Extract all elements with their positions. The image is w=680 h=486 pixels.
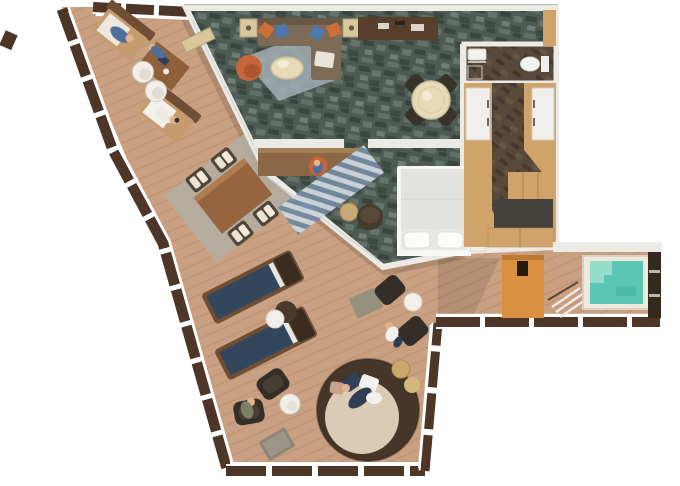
- terrace-end-wall: [648, 252, 661, 318]
- privacy-screen-slot: [517, 261, 528, 276]
- deck-stool-shade: [139, 68, 151, 80]
- terrace-wall: [553, 242, 662, 252]
- closet-door: [532, 88, 554, 140]
- closet-handle: [533, 100, 535, 108]
- end-wall-notch: [649, 294, 660, 297]
- media-console: [358, 17, 438, 40]
- lamp-shade: [246, 25, 251, 30]
- pillow-shape: [437, 232, 464, 249]
- console-top: [358, 17, 438, 40]
- toilet: [521, 57, 540, 71]
- wardrobe: [488, 228, 554, 247]
- dining-area: [403, 72, 458, 127]
- stool: [340, 203, 358, 221]
- railing-fragment: [0, 30, 18, 50]
- armchair-seat: [244, 64, 260, 78]
- daybed-bolster: [404, 377, 420, 393]
- sofa-throw: [314, 51, 335, 68]
- round-daybed: [317, 359, 420, 461]
- daybed-bolster: [392, 360, 410, 378]
- bed-footboard: [397, 250, 471, 256]
- suite-floor-plan: [0, 0, 680, 486]
- person-head: [342, 384, 350, 392]
- sofa-back: [258, 18, 342, 25]
- tv-screen: [395, 21, 405, 25]
- double-bed: [397, 166, 471, 256]
- floor-plan-page: [0, 0, 680, 486]
- desk-edge: [258, 148, 366, 153]
- end-wall-notch: [649, 270, 660, 273]
- wardrobe: [508, 172, 554, 199]
- closet-handle: [487, 118, 489, 126]
- side-table-top: [360, 207, 380, 223]
- console-item: [378, 23, 389, 29]
- duvet-fold: [401, 198, 467, 200]
- coffee-table-shade: [287, 401, 297, 411]
- wardrobe: [543, 10, 556, 46]
- partition-wall: [254, 139, 344, 148]
- coffee-table: [271, 57, 303, 79]
- closet-door: [466, 88, 490, 140]
- coffee-table-highlight: [277, 60, 289, 68]
- bathroom: [464, 44, 556, 83]
- hot-tub-water-shade: [616, 286, 636, 296]
- outdoor-coffee-table: [404, 293, 422, 311]
- privacy-screen-edge: [502, 255, 544, 260]
- bed-pillow: [404, 232, 431, 249]
- deck-stool-shade: [152, 87, 164, 99]
- closet-handle: [487, 100, 489, 108]
- dining-table-highlight: [422, 91, 432, 101]
- vanity-counter: [468, 61, 486, 63]
- sink: [468, 49, 486, 60]
- console-item: [411, 24, 424, 31]
- bed-pillow: [437, 232, 464, 249]
- toilet-tank: [541, 56, 549, 72]
- lamp-shade: [349, 25, 354, 30]
- person-head: [314, 160, 320, 166]
- lounger-side-table: [266, 310, 284, 328]
- partition-wall: [368, 139, 468, 148]
- hot-tub: [583, 256, 650, 309]
- pillow-shape: [404, 232, 431, 249]
- person-figure: [366, 392, 382, 404]
- closet-handle: [533, 118, 535, 126]
